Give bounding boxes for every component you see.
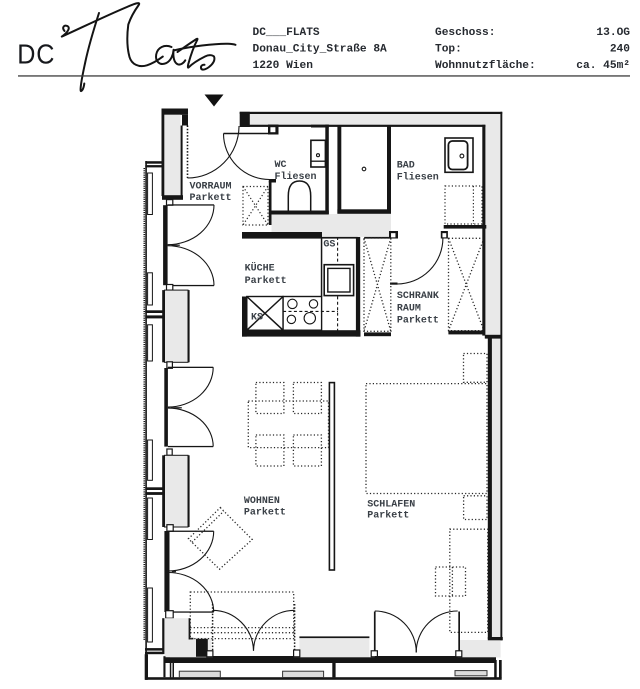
svg-text:13.OG: 13.OG — [596, 27, 630, 39]
svg-text:DC___FLATS: DC___FLATS — [253, 27, 320, 39]
svg-text:Parkett: Parkett — [190, 192, 232, 204]
svg-text:Fliesen: Fliesen — [275, 171, 317, 183]
svg-text:KS: KS — [251, 313, 263, 324]
svg-text:Wohnnutzfläche:: Wohnnutzfläche: — [435, 60, 536, 72]
svg-text:ca. 45m²: ca. 45m² — [576, 60, 630, 72]
svg-text:Parkett: Parkett — [244, 507, 286, 519]
svg-text:KÜCHE: KÜCHE — [245, 261, 275, 274]
svg-text:RAUM: RAUM — [397, 303, 421, 314]
svg-text:GS: GS — [323, 240, 335, 251]
svg-text:Geschoss:: Geschoss: — [435, 27, 495, 39]
svg-text:240: 240 — [610, 44, 630, 56]
svg-text:1220 Wien: 1220 Wien — [253, 60, 314, 72]
svg-text:BAD: BAD — [397, 161, 415, 172]
svg-text:Parkett: Parkett — [367, 510, 409, 522]
svg-text:SCHRANK: SCHRANK — [397, 291, 439, 302]
svg-text:WC: WC — [275, 160, 287, 171]
svg-text:Top:: Top: — [435, 44, 462, 56]
svg-text:VORRAUM: VORRAUM — [190, 182, 232, 193]
svg-text:Donau_City_Straße 8A: Donau_City_Straße 8A — [253, 44, 388, 56]
svg-text:Parkett: Parkett — [245, 275, 287, 287]
svg-text:WOHNEN: WOHNEN — [244, 496, 280, 507]
svg-text:Parkett: Parkett — [397, 314, 439, 326]
svg-text:Fliesen: Fliesen — [397, 172, 439, 184]
svg-text:DC: DC — [17, 38, 55, 70]
svg-text:SCHLAFEN: SCHLAFEN — [367, 499, 415, 510]
